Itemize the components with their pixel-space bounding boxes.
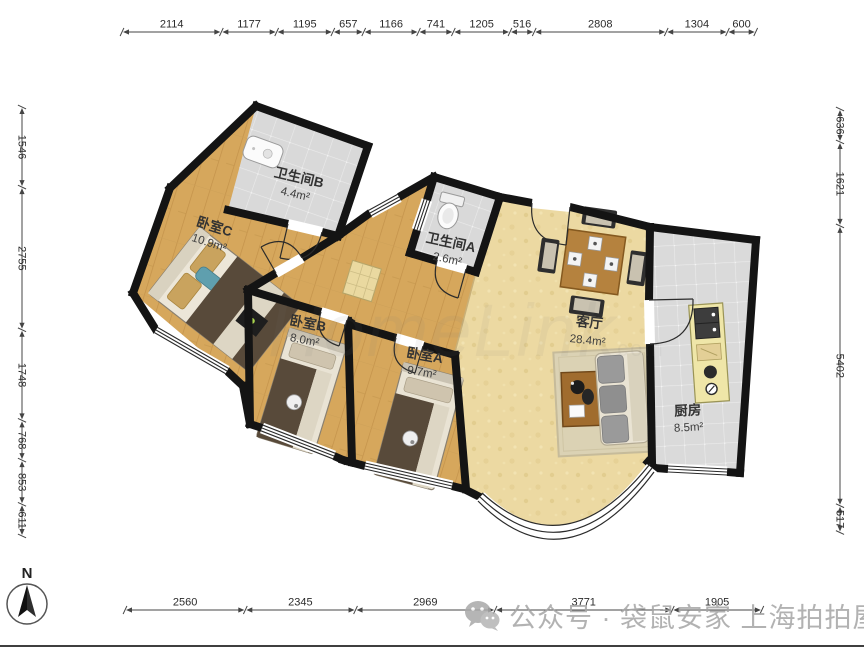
svg-text:1195: 1195 [293,19,317,31]
svg-text:客厅: 客厅 [574,313,604,332]
svg-text:741: 741 [427,19,445,31]
svg-text:厨房: 厨房 [674,401,702,418]
svg-text:2345: 2345 [288,597,312,609]
svg-text:636: 636 [834,116,846,134]
svg-text:8.5m²: 8.5m² [674,421,704,435]
svg-text:1546: 1546 [16,135,28,159]
floor-plan-page: 卫生间B 4.4m² 卧室C 10.9m² 卫生间A 2.6m² 卧室B 8.0… [0,0,864,649]
svg-text:2755: 2755 [16,246,28,270]
svg-text:5402: 5402 [834,354,846,378]
kitchen-counter [689,303,730,403]
svg-text:2560: 2560 [173,597,197,609]
svg-text:611: 611 [16,511,28,529]
compass-needle-left [18,585,27,617]
compass-needle-right [27,585,36,617]
floor-plan: 卫生间B 4.4m² 卧室C 10.9m² 卫生间A 2.6m² 卧室B 8.0… [0,0,864,649]
compass: N [7,565,47,624]
svg-text:1205: 1205 [469,19,493,31]
dimension-row-top: 2114117711956571166741120551628081304600 [120,19,758,37]
svg-text:1748: 1748 [16,363,28,387]
svg-text:657: 657 [339,19,357,31]
svg-text:768: 768 [16,431,28,449]
page-bottom-border [0,645,864,647]
svg-text:517: 517 [834,510,846,528]
dimension-column-right: 63616215402517 [834,107,846,534]
svg-text:1177: 1177 [237,19,261,31]
svg-text:853: 853 [16,473,28,491]
sofa [595,350,649,445]
watermark-bottom: 公众号 · 袋鼠安家 上海拍拍屋 [464,596,864,635]
svg-text:2969: 2969 [413,597,437,609]
svg-text:2114: 2114 [160,19,184,31]
watermark-bottom-text: 公众号 · 袋鼠安家 上海拍拍屋 [509,596,864,635]
svg-text:1621: 1621 [834,172,846,196]
wechat-icon [464,600,500,632]
dimension-column-left: 154627551748768853611 [16,105,28,538]
svg-text:1166: 1166 [379,19,403,31]
coffee-table [561,371,601,426]
svg-text:600: 600 [732,19,750,31]
svg-text:1304: 1304 [685,19,709,31]
compass-north-label: N [22,565,33,582]
svg-text:2808: 2808 [588,19,612,31]
svg-text:516: 516 [513,19,531,31]
